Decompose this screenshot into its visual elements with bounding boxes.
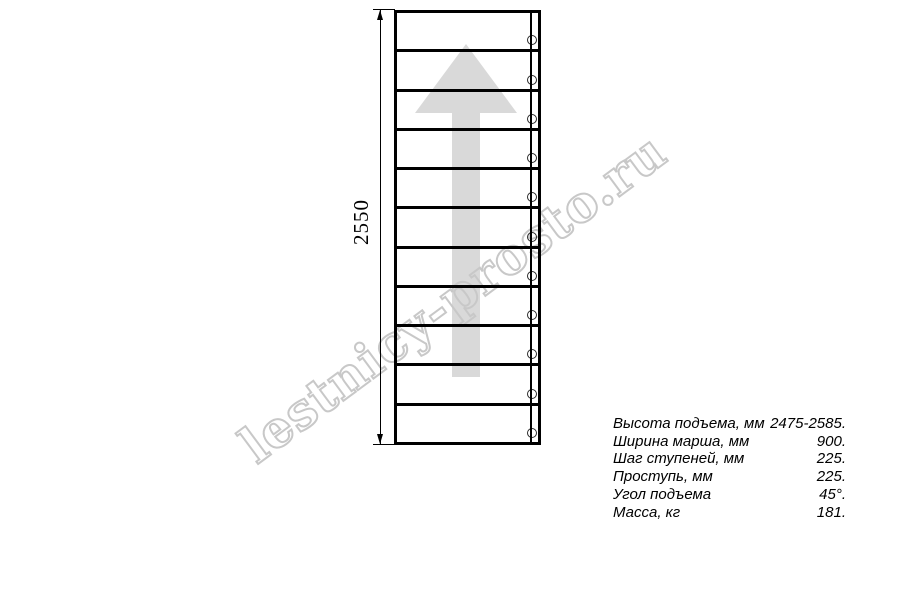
spec-row: Высота подъема, мм2475-2585. [613,415,846,433]
fastener-circle-icon [527,310,537,320]
tread [397,92,538,131]
staircase-treads [397,13,538,442]
dimension-line [380,10,381,444]
spec-table: Высота подъема, мм2475-2585.Ширина марша… [613,415,846,521]
spec-value: 900. [817,433,846,451]
drawing-canvas: lestnicy-prosto.ru 2550 Высота подъема, … [0,0,900,600]
fastener-circle-icon [527,428,537,438]
tread [397,170,538,209]
spec-value: 45°. [819,486,846,504]
spec-value: 181. [817,504,846,522]
staircase-plan [394,10,541,445]
tread [397,13,538,52]
spec-value: 225. [817,468,846,486]
spec-label: Ширина марша, мм [613,433,749,451]
dimension-arrow-down-icon [377,434,383,444]
spec-label: Высота подъема, мм [613,415,765,433]
spec-label: Проступь, мм [613,468,713,486]
spec-value: 225. [817,450,846,468]
tread [397,52,538,91]
tread [397,366,538,405]
spec-row: Шаг ступеней, мм225. [613,450,846,468]
tread [397,249,538,288]
fastener-circle-icon [527,232,537,242]
spec-row: Проступь, мм225. [613,468,846,486]
dimension-arrow-up-icon [377,10,383,20]
tread [397,327,538,366]
fastener-circle-icon [527,153,537,163]
fastener-circle-icon [527,75,537,85]
fastener-circle-icon [527,349,537,359]
spec-row: Масса, кг181. [613,504,846,522]
tread [397,288,538,327]
tread [397,131,538,170]
spec-row: Ширина марша, мм900. [613,433,846,451]
dimension-extension-bottom [373,444,395,445]
tread [397,209,538,248]
fastener-circle-icon [527,192,537,202]
spec-row: Угол подъема45°. [613,486,846,504]
fastener-circle-icon [527,114,537,124]
dimension-label: 2550 [349,189,377,255]
fastener-circle-icon [527,271,537,281]
fastener-circle-icon [527,389,537,399]
spec-label: Шаг ступеней, мм [613,450,744,468]
tread [397,406,538,442]
spec-label: Угол подъема [613,486,711,504]
stringer-inner-line [530,13,532,442]
spec-value: 2475-2585. [770,415,846,433]
fastener-circle-icon [527,35,537,45]
spec-label: Масса, кг [613,504,680,522]
